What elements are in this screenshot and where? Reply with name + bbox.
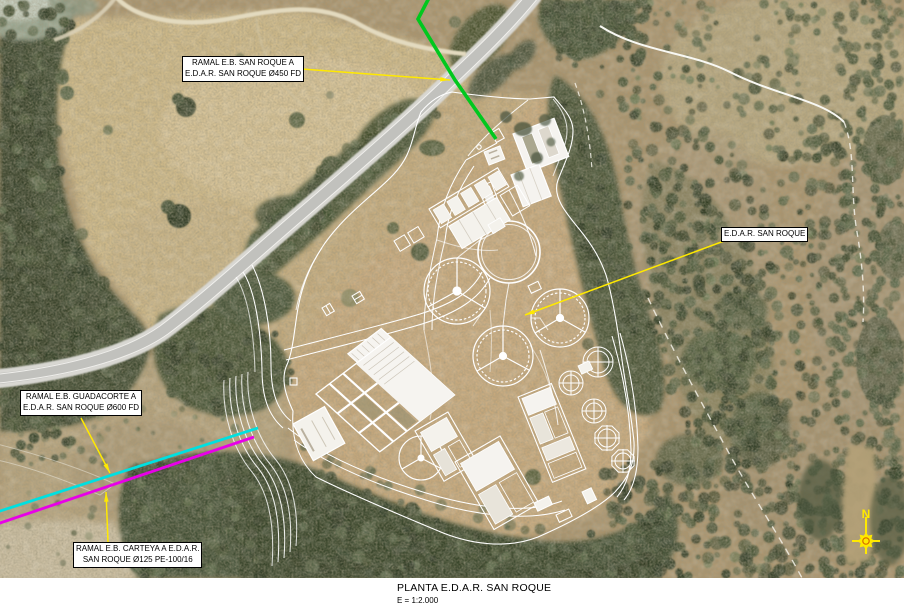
svg-text:N: N [862,507,871,521]
